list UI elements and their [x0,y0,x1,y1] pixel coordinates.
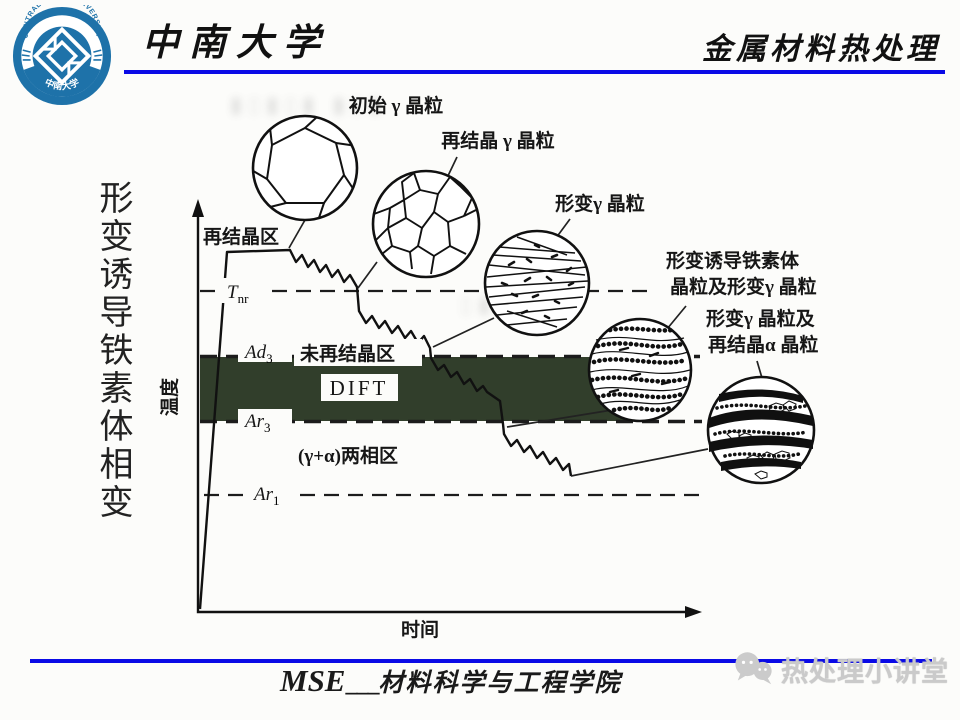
footer-mse: MSE [280,663,345,699]
channel-watermark: 热处理小讲堂 [733,649,949,689]
non-recryst-region-label: 未再结晶区 [299,342,395,365]
dift-grains-label-line2: 晶粒及形变γ 晶粒 [670,275,817,298]
watermark-text: 热处理小讲堂 [781,650,949,689]
y-axis-arrow-icon [192,199,204,217]
two-phase-region-label: (γ+α)两相区 [298,445,398,467]
recrystallized-gamma-label: 再结晶 γ 晶粒 [441,129,554,152]
recryst-region-label: 再结晶区 [203,225,279,248]
chat-bubbles-icon [733,649,775,689]
slide-title-vertical: 形变诱导铁素体相变 [88,180,137,522]
dift-grains-label-line1: 形变诱导铁素体 [666,249,800,272]
micrograph-recrystallized-gamma [373,171,479,277]
initial-gamma-label: 初始 γ 晶粒 [349,94,443,117]
micrograph-initial-gamma [253,116,357,220]
footer-department: MSE___材料科学与工程学院 [280,663,622,699]
slide: CENTRAL SOUTH UNIVERSITY 中南大学 中南大学 金属材料热… [0,0,960,720]
x-axis-label: 时间 [401,619,439,641]
university-logo-icon: CENTRAL SOUTH UNIVERSITY 中南大学 [10,5,114,107]
dift-label: DIFT [330,376,389,400]
footer-underscores: ___ [345,671,378,698]
micrograph-deformed-gamma [485,231,589,335]
dift-schematic-diagram: 再结晶区 Tnr Ad3 未再结晶区 DIFT Ar3 (γ+α)两相区 Ar1… [150,85,850,660]
footer-department-name: 材料科学与工程学院 [378,663,621,699]
alpha-grains-label-line1: 形变γ 晶粒及 [706,307,816,330]
deformed-gamma-label: 形变γ 晶粒 [555,192,645,215]
alpha-grains-label-line2: 再结晶α 晶粒 [708,333,818,356]
x-axis-arrow-icon [685,606,702,618]
y-axis-label: 温度 [158,377,181,416]
micrograph-alpha-grains [708,377,814,483]
micrograph-dift-grains [589,319,691,421]
top-divider [124,70,945,74]
university-title: 中南大学 [142,12,330,66]
course-title: 金属材料热处理 [702,24,940,68]
